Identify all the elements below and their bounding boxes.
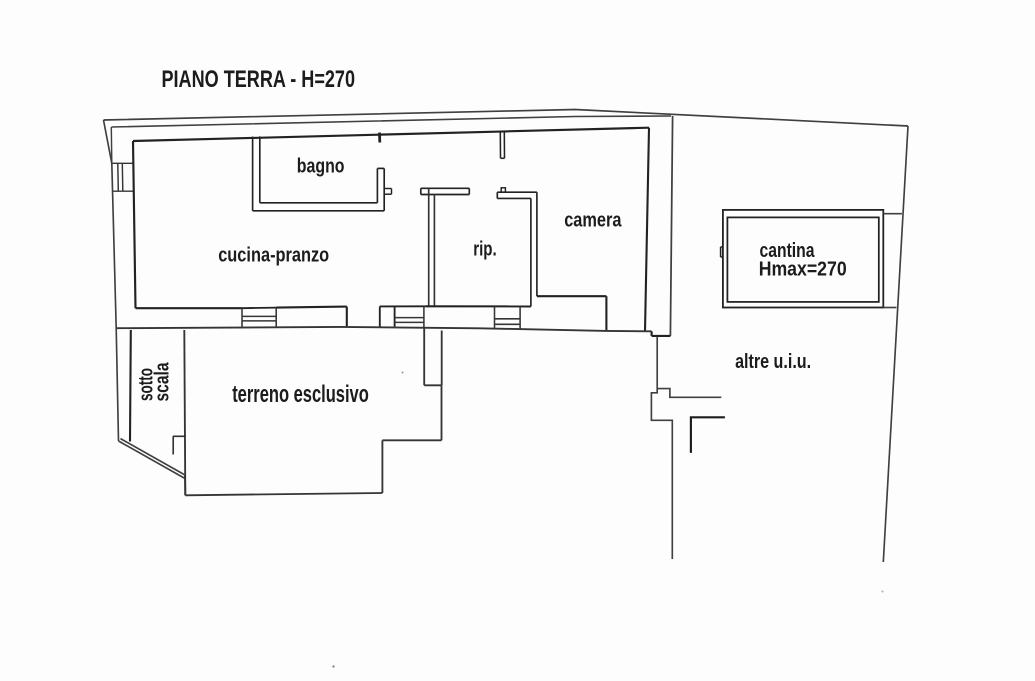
svg-text:scala: scala [152, 362, 174, 402]
svg-text:PIANO TERRA - H=270: PIANO TERRA - H=270 [162, 66, 356, 93]
svg-text:altre u.i.u.: altre u.i.u. [735, 351, 811, 373]
svg-text:rip.: rip. [473, 238, 497, 260]
svg-text:cucina-pranzo: cucina-pranzo [218, 245, 329, 267]
svg-text:camera: camera [564, 210, 622, 232]
svg-text:Hmax=270: Hmax=270 [759, 257, 847, 280]
svg-text:bagno: bagno [297, 156, 345, 178]
svg-text:terreno esclusivo: terreno esclusivo [232, 381, 369, 408]
